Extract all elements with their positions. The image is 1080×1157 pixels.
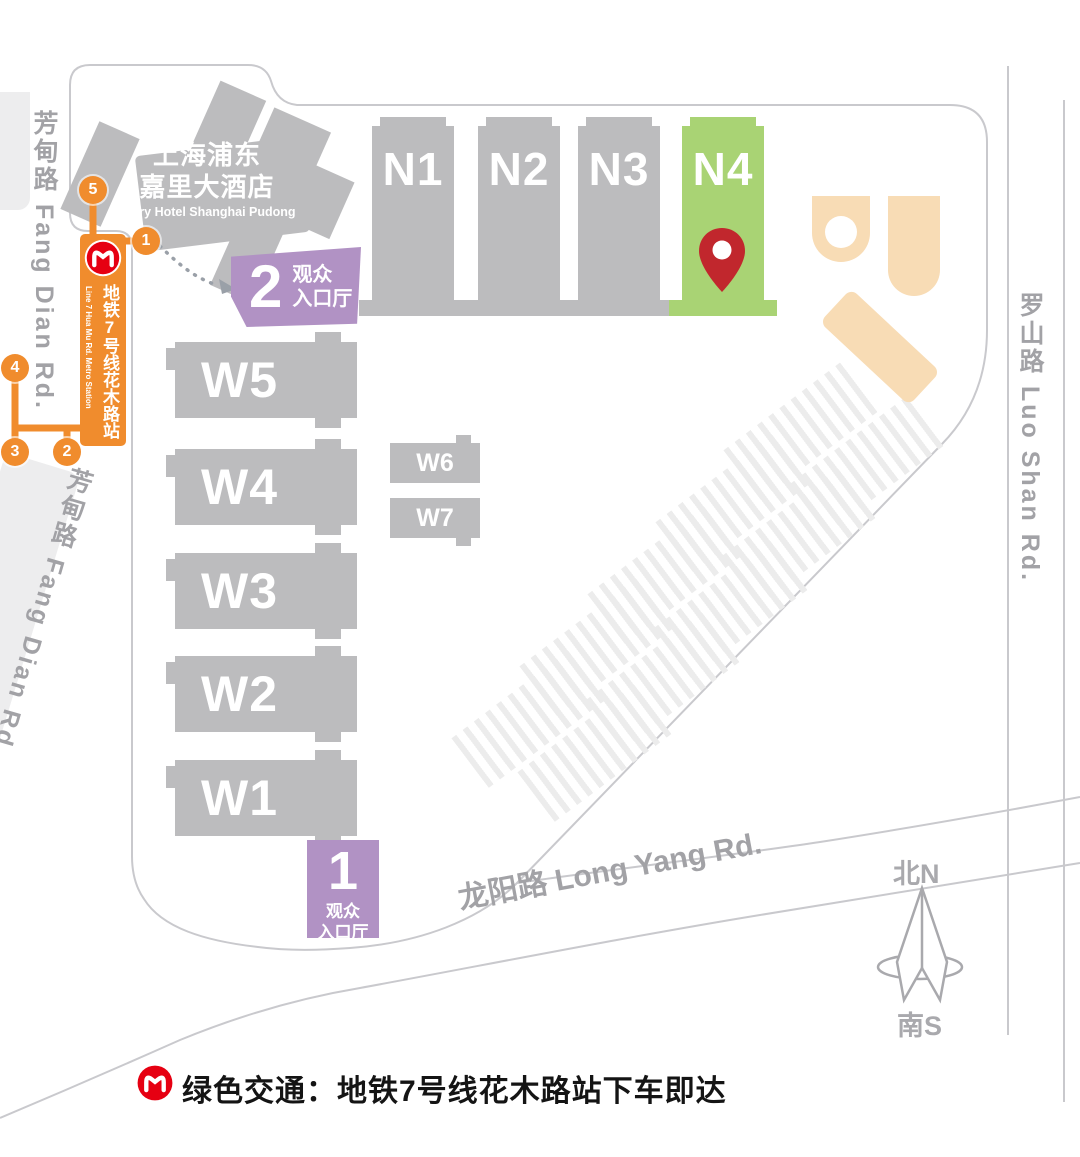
entrance-label-line1: 观众 xyxy=(292,263,352,287)
hotel-name-cn-line1: 上海浦东 xyxy=(118,140,296,172)
hall-label: N2 xyxy=(478,142,560,196)
peach-building-u-shape xyxy=(812,196,870,262)
hall-tab xyxy=(166,662,176,684)
metro-station-name-cn: 地铁7号线花木路站 xyxy=(101,284,118,439)
location-pin-icon xyxy=(696,226,748,298)
hall-label: W5 xyxy=(175,351,278,409)
metro-exit-1: 1 xyxy=(132,227,160,255)
hall-label: W2 xyxy=(175,665,278,723)
exit-number: 4 xyxy=(11,359,20,377)
metro-station-bar: Line 7 Hua Mu Rd. Metro Station 地铁7号线花木路… xyxy=(80,234,126,446)
metro-station-name-en: Line 7 Hua Mu Rd. Metro Station xyxy=(84,286,93,409)
hall-label: W3 xyxy=(175,562,278,620)
hall-n2: N2 xyxy=(478,126,560,300)
exit-number: 1 xyxy=(142,232,151,250)
hall-label: N1 xyxy=(372,142,454,196)
visitor-entrance-hall-2: 2 观众 入口厅 xyxy=(231,247,361,327)
road-label-fang-dian-top: 芳甸路 Fang Dian Rd. xyxy=(26,110,62,411)
expo-map: 上海浦东 嘉里大酒店 Kerry Hotel Shanghai Pudong N… xyxy=(0,0,1080,1157)
exit-number: 3 xyxy=(11,443,20,461)
hall-label: N4 xyxy=(682,142,764,196)
hall-w4: W4 xyxy=(175,449,357,525)
visitor-entrance-hall-1: 1 观众 入口厅 xyxy=(307,840,379,938)
shanghai-metro-logo xyxy=(136,1064,174,1102)
hotel-name-en: Kerry Hotel Shanghai Pudong xyxy=(118,205,296,219)
hall-w1: W1 xyxy=(175,760,357,836)
compass-rose-icon xyxy=(878,888,962,1000)
hall-label: W4 xyxy=(175,458,278,516)
entrance-number: 1 xyxy=(307,844,379,898)
entrance-number: 2 xyxy=(249,257,282,317)
peach-building-tower xyxy=(888,196,940,296)
hall-w2: W2 xyxy=(175,656,357,732)
exit-number: 5 xyxy=(89,181,98,199)
metro-exit-2: 2 xyxy=(53,438,81,466)
metro-exit-5: 5 xyxy=(79,176,107,204)
shanghai-metro-logo xyxy=(84,239,122,277)
kerry-hotel-label: 上海浦东 嘉里大酒店 Kerry Hotel Shanghai Pudong xyxy=(118,140,296,219)
hall-label: W6 xyxy=(416,449,454,478)
compass-north-label: 北N xyxy=(893,852,940,891)
entrance-label-line1: 观众 xyxy=(307,901,379,922)
hall-w6: W6 xyxy=(390,443,480,483)
hall-tab xyxy=(166,559,176,581)
hall-label: W7 xyxy=(416,504,454,533)
hall-label: N3 xyxy=(578,142,660,196)
hall-tab xyxy=(166,766,176,788)
hall-n1: N1 xyxy=(372,126,454,300)
hotel-name-cn-line2: 嘉里大酒店 xyxy=(118,172,296,204)
entrance-label: 观众 入口厅 xyxy=(307,901,379,944)
hall-n3: N3 xyxy=(578,126,660,300)
exit-number: 2 xyxy=(63,443,72,461)
metro-exit-3: 3 xyxy=(1,438,29,466)
green-transport-note: 绿色交通：地铁7号线花木路站下车即达 xyxy=(182,1066,727,1110)
metro-exit-4: 4 xyxy=(1,354,29,382)
compass-south-label: 南S xyxy=(897,1004,942,1043)
hall-w3: W3 xyxy=(175,553,357,629)
hall-tab xyxy=(166,455,176,477)
entrance-label-line2: 入口厅 xyxy=(292,287,352,311)
hall-label: W1 xyxy=(175,769,278,827)
hall-w5: W5 xyxy=(175,342,357,418)
entrance-label-line2: 入口厅 xyxy=(307,922,379,943)
entrance-label: 观众 入口厅 xyxy=(292,263,352,311)
road-label-luo-shan: 罗山路 Luo Shan Rd. xyxy=(1012,292,1048,583)
hall-w7: W7 xyxy=(390,498,480,538)
hall-tab xyxy=(166,348,176,370)
